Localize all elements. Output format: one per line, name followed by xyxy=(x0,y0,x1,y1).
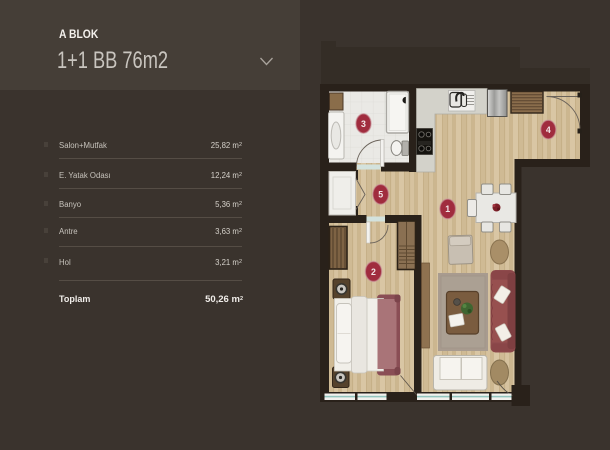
svg-text:3: 3 xyxy=(361,119,366,129)
svg-text:2: 2 xyxy=(371,267,376,277)
svg-text:1: 1 xyxy=(445,204,450,214)
svg-text:5: 5 xyxy=(378,190,383,200)
svg-text:4: 4 xyxy=(546,125,551,135)
